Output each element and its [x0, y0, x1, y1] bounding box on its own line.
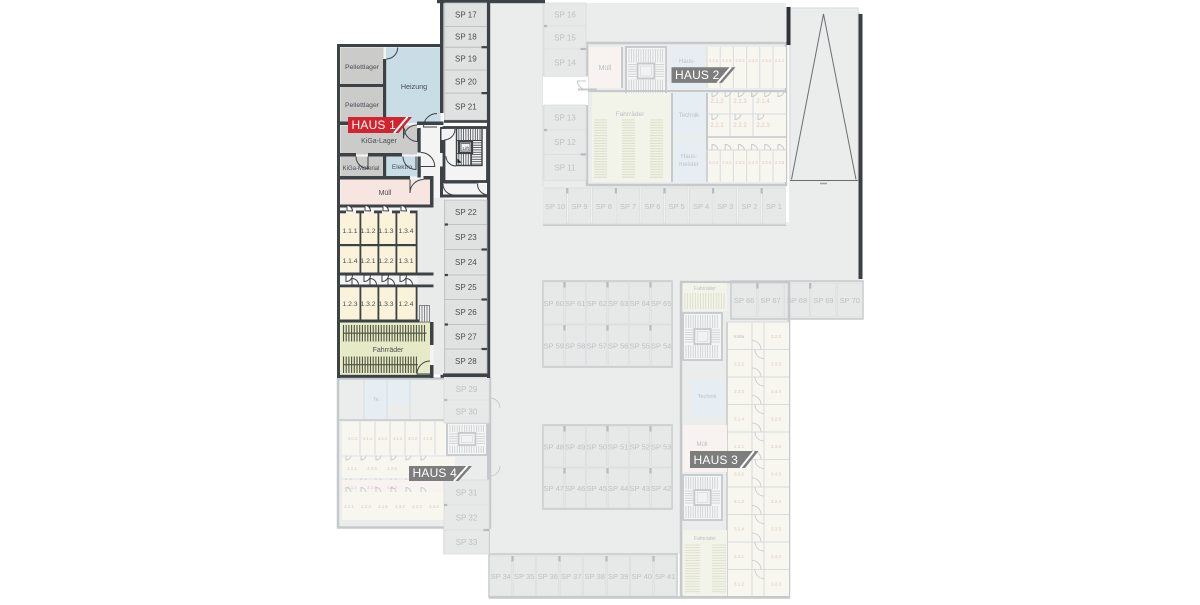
svg-text:SP 39: SP 39	[608, 572, 628, 581]
svg-text:SP 34: SP 34	[491, 572, 511, 581]
svg-text:2.3.4: 2.3.4	[762, 58, 772, 63]
svg-text:SP 13: SP 13	[554, 113, 576, 122]
svg-text:SP 66: SP 66	[734, 296, 754, 305]
svg-text:3.2.5: 3.2.5	[771, 417, 782, 422]
svg-text:4.3.3: 4.3.3	[412, 504, 422, 509]
svg-text:SP 46: SP 46	[565, 484, 585, 493]
svg-text:2.1.1: 2.1.1	[775, 58, 785, 63]
svg-text:4.2.1: 4.2.1	[347, 466, 357, 471]
svg-text:HAUS 1: HAUS 1	[352, 118, 397, 132]
svg-text:Fahrräder: Fahrräder	[616, 111, 645, 118]
svg-text:SP 26: SP 26	[455, 308, 477, 317]
svg-text:3.2.3: 3.2.3	[771, 582, 782, 587]
svg-text:SP 18: SP 18	[455, 33, 477, 42]
svg-text:SP 61: SP 61	[565, 299, 585, 308]
svg-text:SP 21: SP 21	[455, 103, 477, 112]
svg-text:4.0.2: 4.0.2	[408, 436, 418, 441]
svg-text:4.3.2: 4.3.2	[395, 504, 405, 509]
svg-text:SP 59: SP 59	[544, 341, 564, 350]
svg-text:SP 10: SP 10	[545, 202, 565, 211]
svg-text:SP 47: SP 47	[544, 484, 564, 493]
svg-text:SP 27: SP 27	[455, 333, 477, 342]
svg-text:4.1.6: 4.1.6	[423, 436, 433, 441]
svg-text:Müll: Müll	[599, 65, 612, 72]
svg-text:SP 31: SP 31	[456, 488, 478, 497]
svg-text:SP 44: SP 44	[608, 484, 628, 493]
svg-text:1.2.3: 1.2.3	[342, 301, 357, 308]
svg-text:SP 6: SP 6	[644, 202, 660, 211]
svg-text:SP 25: SP 25	[455, 283, 477, 292]
svg-text:4.2.5: 4.2.5	[367, 466, 377, 471]
svg-text:SP 49: SP 49	[565, 442, 585, 451]
svg-text:Müll: Müll	[696, 442, 707, 448]
svg-text:SP 17: SP 17	[455, 11, 477, 20]
svg-text:SP 5: SP 5	[669, 202, 685, 211]
svg-text:HAUS 2: HAUS 2	[675, 68, 720, 82]
svg-text:2.4.2: 2.4.2	[735, 160, 745, 165]
svg-text:2.2.6: 2.2.6	[722, 58, 732, 63]
svg-text:KiGa-Material: KiGa-Material	[343, 166, 380, 172]
svg-text:SP 30: SP 30	[456, 407, 478, 416]
svg-text:SP 55: SP 55	[630, 341, 650, 350]
svg-text:SP 32: SP 32	[456, 513, 478, 522]
svg-text:2.3.6: 2.3.6	[775, 160, 785, 165]
svg-text:4.1.1: 4.1.1	[363, 436, 373, 441]
svg-text:3.3.3: 3.3.3	[771, 362, 782, 367]
svg-text:1.3.4: 1.3.4	[398, 228, 413, 235]
svg-text:3.2.1: 3.2.1	[734, 444, 745, 449]
svg-text:4.3.4: 4.3.4	[429, 504, 439, 509]
svg-text:SP 11: SP 11	[554, 163, 576, 172]
svg-text:2.2.1: 2.2.1	[710, 123, 724, 129]
svg-text:SP 12: SP 12	[554, 138, 576, 147]
svg-text:SP 38: SP 38	[585, 572, 605, 581]
svg-text:1.2.2: 1.2.2	[378, 258, 393, 265]
svg-text:1.1.2: 1.1.2	[360, 228, 375, 235]
svg-text:1.1.1: 1.1.1	[342, 228, 357, 235]
svg-text:SP 8: SP 8	[596, 202, 612, 211]
svg-text:Elektro: Elektro	[392, 164, 413, 171]
svg-text:SP 36: SP 36	[538, 572, 558, 581]
svg-text:3.3.2: 3.3.2	[734, 472, 745, 477]
svg-text:SP 67: SP 67	[760, 296, 780, 305]
svg-text:3.1.4: 3.1.4	[734, 417, 745, 422]
svg-text:3.4.3: 3.4.3	[771, 472, 782, 477]
svg-text:4.0.1: 4.0.1	[348, 436, 358, 441]
svg-text:Fahrräder: Fahrräder	[694, 536, 716, 542]
svg-text:SP 23: SP 23	[455, 233, 477, 242]
svg-text:2.4.1: 2.4.1	[722, 160, 732, 165]
svg-text:4.1.5: 4.1.5	[378, 504, 388, 509]
svg-text:2.1.2: 2.1.2	[710, 99, 724, 105]
svg-text:SP 35: SP 35	[514, 572, 534, 581]
svg-text:SP 9: SP 9	[571, 202, 587, 211]
svg-text:SP 40: SP 40	[632, 572, 652, 581]
svg-text:3.4.2: 3.4.2	[771, 554, 782, 559]
svg-text:4.1.4: 4.1.4	[347, 485, 357, 490]
svg-text:3.3.3: 3.3.3	[734, 389, 745, 394]
svg-text:SP 69: SP 69	[813, 296, 833, 305]
svg-text:SP 52: SP 52	[630, 442, 650, 451]
svg-text:SP 45: SP 45	[587, 484, 607, 493]
svg-text:HAUS 4: HAUS 4	[413, 466, 458, 480]
svg-text:2.1.3: 2.1.3	[733, 99, 747, 105]
svg-text:SP 62: SP 62	[587, 299, 607, 308]
svg-text:Heizung: Heizung	[401, 82, 427, 91]
svg-text:1.3.2: 1.3.2	[360, 301, 375, 308]
svg-text:SP 65: SP 65	[651, 299, 671, 308]
svg-text:3.4.4: 3.4.4	[771, 389, 782, 394]
svg-text:3.2.4: 3.2.4	[734, 527, 745, 532]
svg-text:SP 64: SP 64	[630, 299, 650, 308]
svg-text:SP 4: SP 4	[693, 202, 709, 211]
svg-text:SP 14: SP 14	[554, 59, 576, 68]
svg-text:1.2.4: 1.2.4	[398, 301, 413, 308]
svg-text:Technik: Technik	[679, 113, 700, 119]
svg-text:SP 24: SP 24	[455, 258, 477, 267]
svg-text:SP 48: SP 48	[544, 442, 564, 451]
svg-text:3.3.2: 3.3.2	[771, 444, 782, 449]
svg-text:SP 50: SP 50	[587, 442, 607, 451]
svg-text:Technik: Technik	[698, 394, 717, 400]
svg-text:Fahrräder: Fahrräder	[694, 286, 716, 292]
svg-text:3.2.4: 3.2.4	[771, 499, 782, 504]
svg-text:3.1.2: 3.1.2	[734, 582, 745, 587]
svg-text:SP 33: SP 33	[456, 538, 478, 547]
svg-text:2.3.2: 2.3.2	[735, 58, 745, 63]
svg-text:SP 51: SP 51	[608, 442, 628, 451]
svg-text:3.2.2: 3.2.2	[734, 362, 745, 367]
svg-text:SP 70: SP 70	[840, 296, 860, 305]
svg-text:SP 3: SP 3	[717, 202, 733, 211]
svg-text:1.1.4: 1.1.4	[342, 258, 357, 265]
svg-text:2.2.4: 2.2.4	[709, 160, 719, 165]
svg-text:4.1.2: 4.1.2	[378, 436, 388, 441]
svg-text:Lift: Lift	[462, 146, 469, 152]
svg-text:SP 63: SP 63	[608, 299, 628, 308]
svg-text:3.2.2: 3.2.2	[771, 334, 782, 339]
svg-text:2.2.5: 2.2.5	[709, 58, 719, 63]
svg-text:SP 20: SP 20	[455, 77, 477, 86]
svg-text:SP 29: SP 29	[456, 385, 478, 394]
svg-text:Müll: Müll	[379, 190, 392, 197]
svg-text:HAUS 3: HAUS 3	[694, 453, 739, 467]
svg-text:2.3.5: 2.3.5	[762, 160, 772, 165]
svg-text:SP 16: SP 16	[554, 10, 576, 19]
svg-text:SP 15: SP 15	[554, 33, 576, 42]
svg-text:SP 2: SP 2	[741, 202, 757, 211]
svg-text:SP 37: SP 37	[561, 572, 581, 581]
svg-text:4.1.3: 4.1.3	[393, 436, 403, 441]
svg-text:1.2.1: 1.2.1	[360, 258, 375, 265]
svg-text:2.2.2: 2.2.2	[733, 123, 747, 129]
svg-text:KiGa-Lager: KiGa-Lager	[361, 138, 397, 145]
svg-text:SP 54: SP 54	[651, 341, 671, 350]
svg-text:3.3.5: 3.3.5	[771, 527, 782, 532]
svg-text:4.2.6: 4.2.6	[387, 466, 397, 471]
svg-text:meister: meister	[679, 162, 699, 168]
svg-text:SP 7: SP 7	[620, 202, 636, 211]
svg-text:Haus-: Haus-	[679, 59, 695, 65]
svg-text:Pellettlager: Pellettlager	[345, 102, 380, 109]
svg-text:1.3.1: 1.3.1	[398, 258, 413, 265]
svg-text:SP 22: SP 22	[455, 208, 477, 217]
svg-text:SP 41: SP 41	[655, 572, 675, 581]
svg-text:SP 28: SP 28	[455, 357, 477, 366]
svg-text:2.4.3: 2.4.3	[749, 160, 759, 165]
svg-text:3.1.3: 3.1.3	[734, 499, 745, 504]
svg-text:SP 19: SP 19	[455, 54, 477, 63]
svg-text:KiWa: KiWa	[734, 334, 745, 339]
svg-text:4.2.3: 4.2.3	[361, 504, 371, 509]
svg-text:2.1.4: 2.1.4	[756, 99, 770, 105]
svg-text:1.3.3: 1.3.3	[378, 301, 393, 308]
svg-text:SP 56: SP 56	[608, 341, 628, 350]
svg-text:2.2.3: 2.2.3	[756, 123, 770, 129]
svg-text:SP 42: SP 42	[651, 484, 671, 493]
svg-text:SP 43: SP 43	[630, 484, 650, 493]
svg-text:SP 53: SP 53	[651, 442, 671, 451]
svg-text:Fahrräder: Fahrräder	[373, 347, 404, 354]
svg-text:3.3.1: 3.3.1	[734, 554, 745, 559]
svg-text:Haus-: Haus-	[681, 154, 697, 160]
svg-text:1.1.3: 1.1.3	[378, 228, 393, 235]
svg-text:2.3.3: 2.3.3	[749, 58, 759, 63]
svg-text:SP 57: SP 57	[587, 341, 607, 350]
svg-text:Te.: Te.	[373, 397, 380, 403]
svg-text:SP 60: SP 60	[544, 299, 564, 308]
svg-text:4.3.1: 4.3.1	[344, 504, 354, 509]
svg-text:SP 58: SP 58	[565, 341, 585, 350]
svg-text:Pellettlager: Pellettlager	[345, 64, 380, 71]
svg-text:SP 1: SP 1	[766, 202, 782, 211]
